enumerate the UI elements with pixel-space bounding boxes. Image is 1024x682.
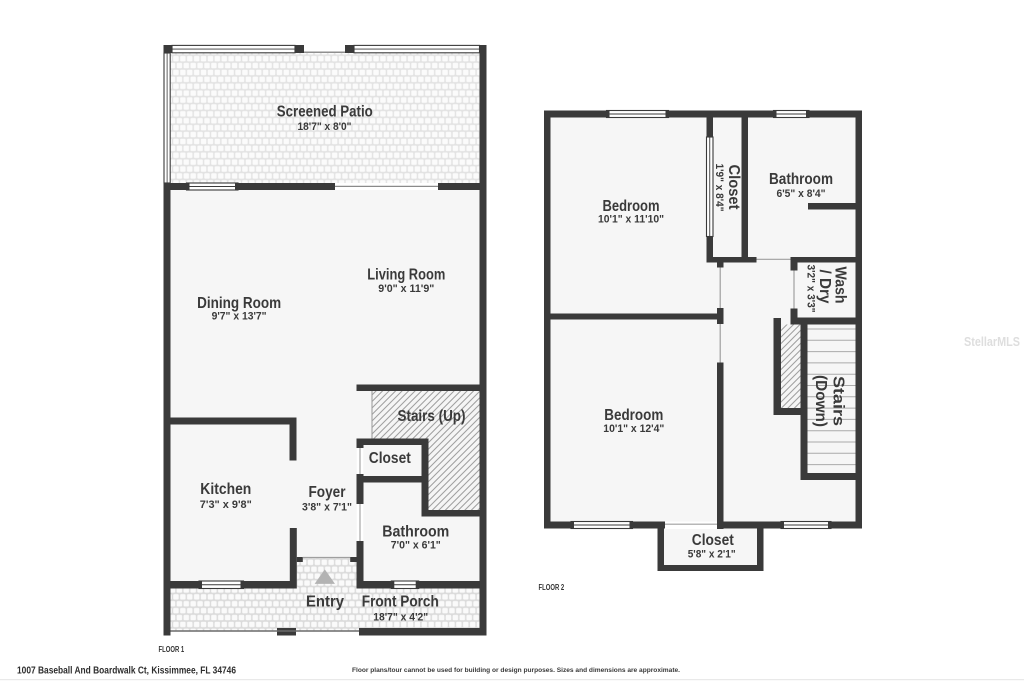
svg-text:Entry: Entry <box>306 593 344 610</box>
svg-text:5'8" x 2'1": 5'8" x 2'1" <box>688 548 736 560</box>
svg-text:StellarMLS: StellarMLS <box>964 335 1020 349</box>
svg-text:Closet: Closet <box>725 165 742 210</box>
svg-text:Wash: Wash <box>832 267 849 304</box>
svg-text:Front Porch: Front Porch <box>362 593 439 610</box>
svg-text:Floor plans/tour cannot be use: Floor plans/tour cannot be used for buil… <box>352 667 680 674</box>
svg-text:Foyer: Foyer <box>309 484 346 501</box>
svg-text:18'7" x 8'0": 18'7" x 8'0" <box>298 121 352 133</box>
svg-text:Stairs (Up): Stairs (Up) <box>398 408 466 425</box>
svg-text:(Down): (Down) <box>812 375 829 427</box>
svg-text:3'8" x 7'1": 3'8" x 7'1" <box>302 501 352 513</box>
svg-text:FLOOR 2: FLOOR 2 <box>539 583 565 592</box>
svg-text:/ Dry: / Dry <box>816 270 833 304</box>
svg-text:Kitchen: Kitchen <box>200 481 251 498</box>
svg-text:Closet: Closet <box>692 532 734 549</box>
svg-text:FLOOR 1: FLOOR 1 <box>159 645 185 654</box>
svg-text:Closet: Closet <box>369 450 411 467</box>
svg-text:Bathroom: Bathroom <box>382 524 449 541</box>
svg-text:Dining Room: Dining Room <box>197 295 281 312</box>
svg-text:9'0" x 11'9": 9'0" x 11'9" <box>378 283 434 295</box>
svg-text:7'3" x 9'8": 7'3" x 9'8" <box>200 499 252 511</box>
svg-text:Bedroom: Bedroom <box>604 407 663 424</box>
svg-text:9'7" x 13'7": 9'7" x 13'7" <box>212 311 267 323</box>
svg-text:Bathroom: Bathroom <box>769 171 833 188</box>
svg-text:6'5" x 8'4": 6'5" x 8'4" <box>777 188 826 200</box>
svg-text:18'7" x 4'2": 18'7" x 4'2" <box>373 611 428 623</box>
svg-text:10'1" x 12'4": 10'1" x 12'4" <box>603 423 664 435</box>
svg-text:7'0" x 6'1": 7'0" x 6'1" <box>391 540 441 552</box>
svg-text:10'1" x 11'10": 10'1" x 11'10" <box>598 213 664 225</box>
svg-text:Stairs: Stairs <box>830 376 847 426</box>
svg-text:3'2" x 3'3": 3'2" x 3'3" <box>805 265 817 313</box>
svg-text:1'9" x 8'4": 1'9" x 8'4" <box>713 164 725 212</box>
svg-text:Living Room: Living Room <box>367 267 445 284</box>
svg-text:1007 Baseball And Boardwalk Ct: 1007 Baseball And Boardwalk Ct, Kissimme… <box>17 666 237 677</box>
svg-text:Screened Patio: Screened Patio <box>277 104 373 121</box>
